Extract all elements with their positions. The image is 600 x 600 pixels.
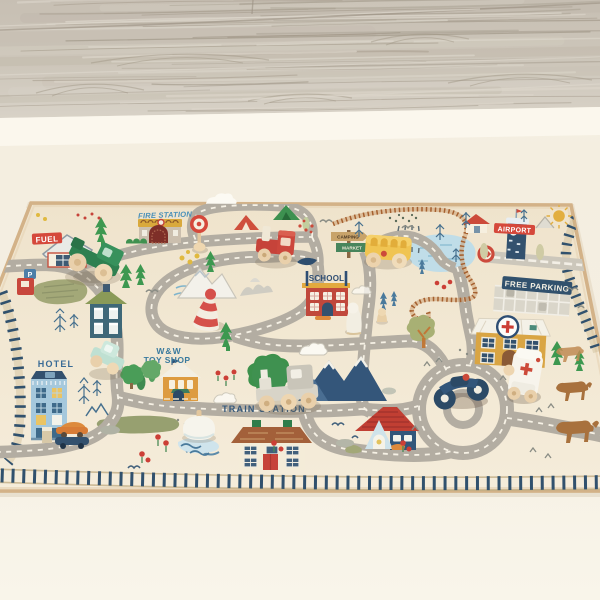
svg-text:P: P bbox=[28, 272, 33, 279]
svg-text:MARKET: MARKET bbox=[342, 246, 362, 251]
svg-text:FUEL: FUEL bbox=[35, 234, 58, 244]
svg-text:HOTEL: HOTEL bbox=[38, 359, 75, 369]
svg-text:FIRE STATION: FIRE STATION bbox=[138, 210, 193, 221]
svg-text:SCHOOL: SCHOOL bbox=[309, 274, 344, 283]
svg-text:CAMPING: CAMPING bbox=[337, 235, 359, 240]
